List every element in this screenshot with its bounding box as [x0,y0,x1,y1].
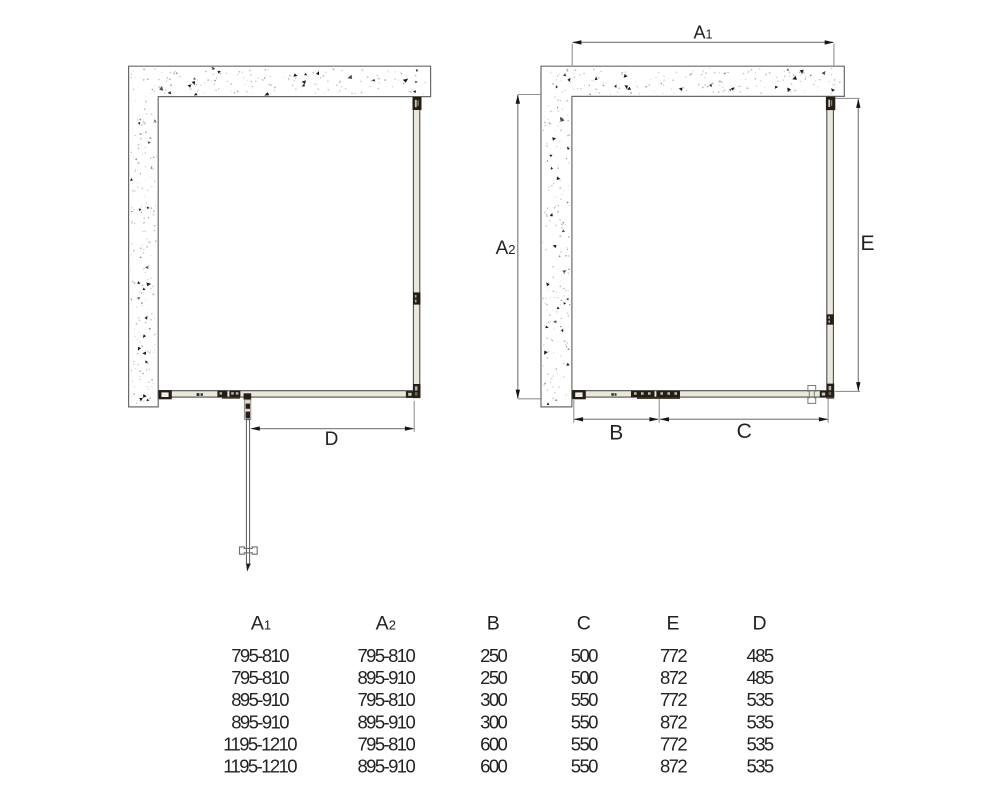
svg-text:535: 535 [747,756,774,777]
svg-text:300: 300 [480,689,507,710]
svg-text:550: 550 [571,689,598,710]
svg-text:300: 300 [480,712,507,733]
svg-text:500: 500 [571,645,598,666]
svg-text:535: 535 [747,712,774,733]
svg-text:872: 872 [660,756,687,777]
svg-text:600: 600 [480,756,507,777]
svg-text:795-810: 795-810 [357,645,415,666]
svg-text:895-910: 895-910 [231,689,289,710]
svg-text:A1: A1 [251,612,271,634]
svg-text:872: 872 [660,667,687,688]
svg-text:485: 485 [747,645,774,666]
svg-text:550: 550 [571,712,598,733]
svg-text:535: 535 [747,689,774,710]
svg-text:B: B [609,421,623,444]
svg-text:550: 550 [571,734,598,755]
svg-text:895-910: 895-910 [357,712,415,733]
svg-text:1195-1210: 1195-1210 [223,756,297,777]
svg-text:795-810: 795-810 [357,689,415,710]
svg-text:1195-1210: 1195-1210 [223,734,297,755]
svg-text:772: 772 [660,645,687,666]
svg-text:D: D [753,612,767,634]
svg-text:600: 600 [480,734,507,755]
svg-text:250: 250 [480,645,507,666]
svg-text:C: C [577,612,591,634]
svg-text:895-910: 895-910 [357,756,415,777]
svg-text:772: 772 [660,734,687,755]
svg-text:795-810: 795-810 [357,734,415,755]
svg-text:E: E [666,612,679,634]
svg-text:A2: A2 [496,238,516,259]
svg-text:A1: A1 [694,23,713,43]
svg-text:485: 485 [747,667,774,688]
svg-text:795-810: 795-810 [231,645,289,666]
svg-text:872: 872 [660,712,687,733]
svg-text:895-910: 895-910 [357,667,415,688]
svg-text:D: D [325,429,339,450]
svg-text:795-810: 795-810 [231,667,289,688]
svg-text:B: B [487,612,500,634]
svg-text:895-910: 895-910 [231,712,289,733]
svg-text:250: 250 [480,667,507,688]
svg-text:C: C [737,420,752,443]
svg-text:535: 535 [747,734,774,755]
svg-text:550: 550 [571,756,598,777]
svg-text:E: E [861,232,875,255]
svg-text:500: 500 [571,667,598,688]
svg-text:A2: A2 [376,612,396,634]
svg-text:772: 772 [660,689,687,710]
